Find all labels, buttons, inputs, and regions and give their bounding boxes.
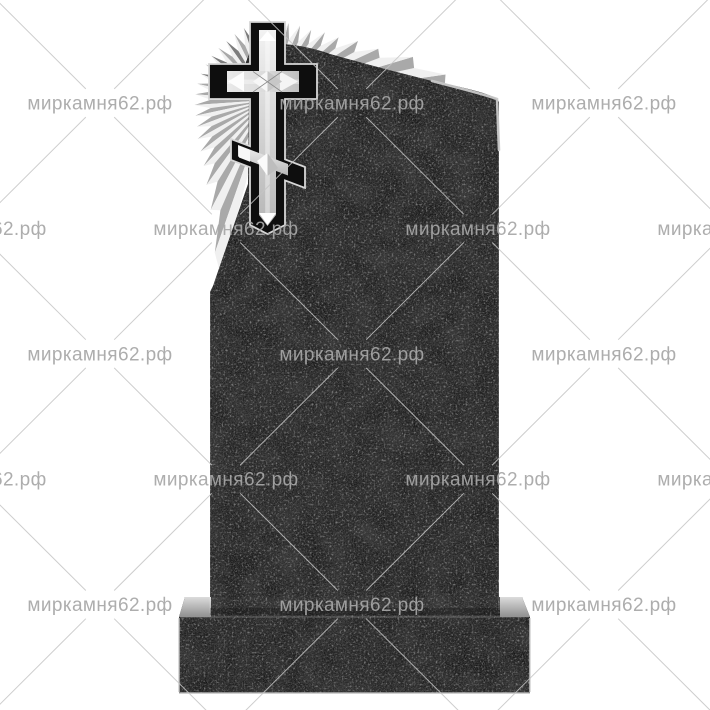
watermark-text: миркамня62.рф [279, 344, 424, 365]
watermark-text: миркамня62.рф [279, 94, 424, 115]
watermark-text: миркамня62.рф [405, 219, 550, 240]
watermark-text: миркамня62.рф [657, 470, 710, 491]
watermark-text: миркамня62.рф [405, 470, 550, 491]
watermark-text: миркамня62.рф [279, 595, 424, 616]
watermark-text: миркамня62.рф [531, 94, 676, 115]
product-photo: миркамня62.рфмиркамня62.рфмиркамня62.рфм… [0, 0, 710, 710]
watermark-text: миркамня62.рф [531, 344, 676, 365]
watermark-text: миркамня62.рф [27, 344, 172, 365]
monument-scene: миркамня62.рфмиркамня62.рфмиркамня62.рфм… [0, 0, 710, 710]
watermark-text: миркамня62.рф [27, 94, 172, 115]
watermark-text: миркамня62.рф [531, 595, 676, 616]
watermark-text: миркамня62.рф [27, 595, 172, 616]
watermark-layer: миркамня62.рфмиркамня62.рфмиркамня62.рфм… [0, 0, 710, 710]
watermark-text: миркамня62.рф [657, 219, 710, 240]
watermark-text: миркамня62.рф [0, 219, 47, 240]
watermark-text: миркамня62.рф [0, 470, 47, 491]
watermark-text: миркамня62.рф [153, 470, 298, 491]
watermark-text: миркамня62.рф [153, 219, 298, 240]
